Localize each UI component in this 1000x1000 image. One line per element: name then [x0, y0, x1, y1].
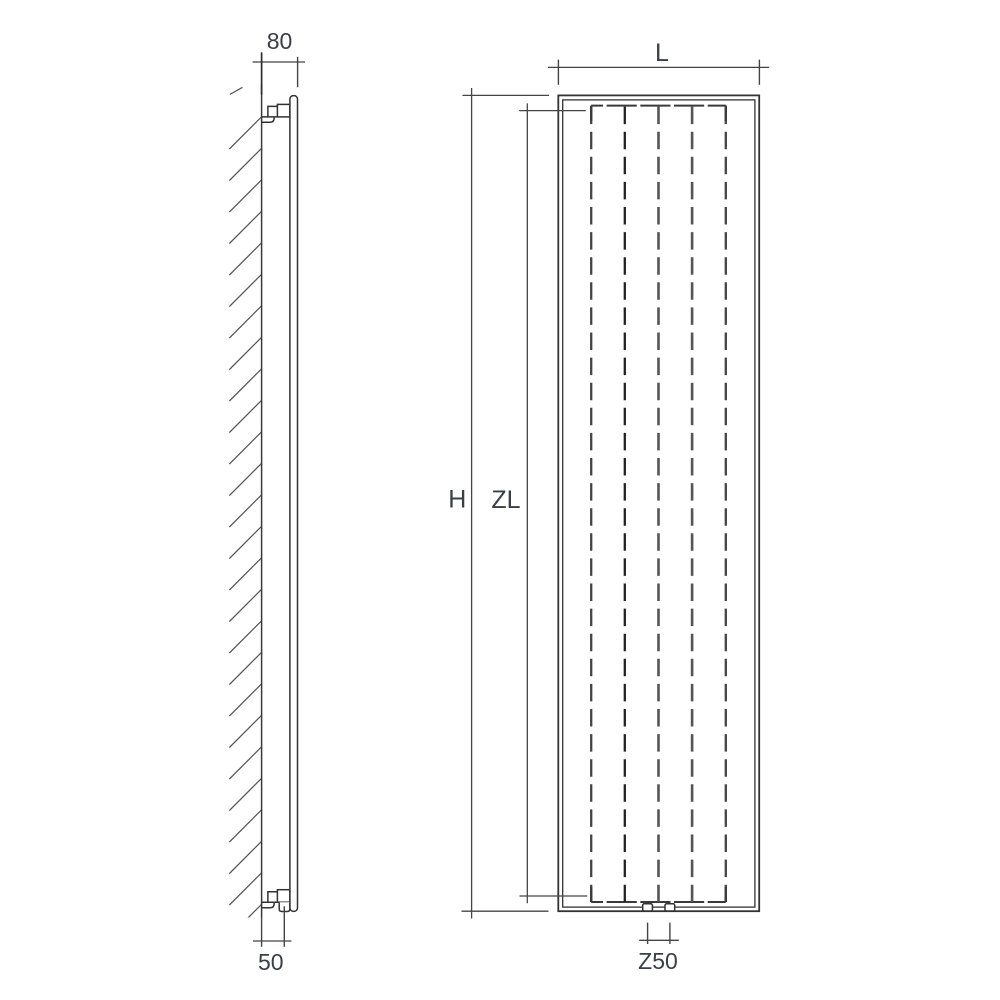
svg-text:H: H [448, 486, 466, 514]
svg-text:L: L [655, 39, 669, 67]
svg-text:Z50: Z50 [638, 948, 678, 974]
svg-text:ZL: ZL [491, 486, 520, 514]
svg-text:50: 50 [258, 949, 284, 975]
svg-text:80: 80 [267, 28, 293, 54]
